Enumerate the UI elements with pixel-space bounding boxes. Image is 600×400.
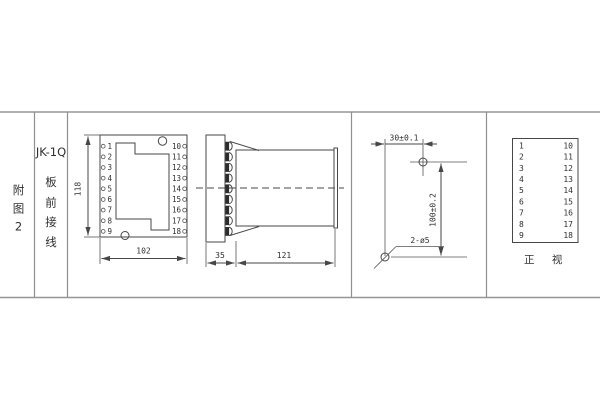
- table-terminal-number: 11: [563, 153, 573, 162]
- terminal-contact-circle: [183, 219, 187, 223]
- table-terminal-number: 18: [563, 231, 573, 240]
- terminal-contact-circle: [183, 230, 187, 234]
- side-view-chamfer-bottom: [230, 227, 259, 236]
- table-terminal-number: 1: [519, 141, 524, 150]
- table-terminal-number: 9: [519, 231, 524, 240]
- front-terminal-number: 4: [108, 174, 113, 183]
- terminal-contact-circle: [101, 166, 105, 170]
- terminal-pin-base: [226, 174, 230, 183]
- side-view: 35 121: [196, 135, 344, 267]
- terminal-contact-circle: [183, 176, 187, 180]
- terminal-pin-base: [226, 206, 230, 215]
- terminal-contact-circle: [101, 230, 105, 234]
- terminal-pin-base: [226, 142, 230, 151]
- figure-label-column: 附 图 2: [13, 183, 25, 234]
- front-terminal-number: 13: [172, 174, 181, 183]
- front-terminal-number: 17: [172, 216, 181, 225]
- wiring-label-char: 前: [45, 196, 57, 210]
- table-terminal-number: 2: [519, 153, 524, 162]
- hole-note-leader: 2-ø5: [374, 236, 444, 269]
- terminal-pin-base: [226, 216, 230, 225]
- table-terminal-number: 16: [563, 209, 573, 218]
- dim-118: 118: [74, 135, 101, 237]
- model-label: JK-1Q: [35, 145, 66, 159]
- dim-102: 102: [100, 238, 187, 264]
- wiring-label-char: 线: [45, 235, 57, 249]
- technical-drawing: 附 图 2 JK-1Q 板 前 接 线 123456789 1011121314…: [0, 0, 600, 400]
- terminal-table-left-numbers: 123456789: [519, 141, 524, 240]
- mounting-hole-bottom: [121, 232, 129, 240]
- terminal-table-right-numbers: 101112131415161718: [563, 141, 573, 240]
- table-terminal-number: 17: [563, 220, 573, 229]
- terminal-contact-circle: [183, 166, 187, 170]
- terminal-pin-base: [226, 163, 230, 172]
- front-terminal-number: 1: [108, 142, 113, 151]
- terminal-table: 123456789 101112131415161718 正 视: [513, 139, 579, 267]
- front-view: 123456789 101112131415161718 118 102: [74, 135, 188, 264]
- terminal-pin-dome: [229, 206, 232, 215]
- dim-text-width: 102: [136, 247, 151, 256]
- dim-text-height: 118: [74, 182, 83, 197]
- drilling-plan: 30±0.1 100±0.2 2-ø5: [371, 134, 467, 269]
- front-left-terminal-numbers: 123456789: [108, 142, 113, 236]
- mounting-hole-top: [158, 137, 166, 145]
- table-terminal-number: 4: [519, 175, 524, 184]
- front-left-terminal-circles: [101, 144, 105, 233]
- view-caption: 正 视: [524, 253, 569, 266]
- figure-label-char: 附: [13, 183, 25, 197]
- terminal-contact-circle: [101, 155, 105, 159]
- front-terminal-number: 15: [172, 195, 181, 204]
- front-terminal-number: 10: [172, 142, 182, 151]
- table-terminal-number: 3: [519, 164, 524, 173]
- terminal-pin-base: [226, 227, 230, 236]
- side-view-terminal-bumps: [226, 142, 233, 236]
- wiring-label-char: 接: [45, 215, 57, 229]
- front-terminal-number: 12: [172, 163, 181, 172]
- terminal-pin-dome: [229, 142, 232, 151]
- side-view-chamfer-top: [230, 142, 259, 151]
- dim-100: 100±0.2: [429, 164, 442, 256]
- table-terminal-number: 15: [563, 197, 573, 206]
- terminal-contact-circle: [101, 208, 105, 212]
- hole-note-text: 2-ø5: [410, 236, 429, 245]
- terminal-contact-circle: [101, 187, 105, 191]
- front-right-terminal-circles: [183, 144, 187, 233]
- wiring-label-char: 板: [45, 175, 57, 189]
- table-terminal-number: 13: [563, 175, 573, 184]
- terminal-pin-dome: [229, 185, 232, 194]
- terminal-pin-dome: [229, 153, 232, 162]
- drawing-sheet: 附 图 2 JK-1Q 板 前 接 线 123456789 1011121314…: [0, 0, 600, 400]
- terminal-pin-dome: [229, 216, 232, 225]
- front-right-terminal-numbers: 101112131415161718: [172, 142, 182, 236]
- terminal-contact-circle: [101, 198, 105, 202]
- front-terminal-number: 3: [108, 163, 113, 172]
- dim-text-hole-spacing-v: 100±0.2: [429, 193, 438, 227]
- terminal-pin-base: [226, 152, 230, 161]
- table-terminal-number: 14: [563, 186, 573, 195]
- table-terminal-number: 12: [563, 164, 573, 173]
- figure-label-char: 2: [15, 220, 22, 234]
- front-terminal-number: 18: [172, 227, 182, 236]
- terminal-contact-circle: [101, 144, 105, 148]
- sheet-frame: [0, 112, 600, 298]
- dim-30: 30±0.1: [371, 134, 437, 145]
- terminal-contact-circle: [101, 176, 105, 180]
- dim-text-hole-spacing-h: 30±0.1: [390, 134, 419, 143]
- front-terminal-number: 16: [172, 206, 182, 215]
- terminal-pin-base: [226, 195, 230, 204]
- front-terminal-number: 11: [172, 152, 181, 161]
- dim-text-body-depth: 121: [277, 251, 292, 260]
- terminal-contact-circle: [183, 198, 187, 202]
- dim-text-plate-depth: 35: [215, 251, 225, 260]
- front-terminal-number: 8: [108, 216, 113, 225]
- figure-label-char: 图: [13, 202, 25, 216]
- front-terminal-number: 14: [172, 184, 182, 193]
- front-terminal-number: 2: [108, 152, 113, 161]
- front-terminal-number: 7: [108, 206, 113, 215]
- terminal-pin-dome: [229, 163, 232, 172]
- terminal-contact-circle: [183, 155, 187, 159]
- front-terminal-number: 6: [108, 195, 113, 204]
- terminal-pin-dome: [229, 195, 232, 204]
- terminal-contact-circle: [183, 208, 187, 212]
- terminal-pin-dome: [229, 174, 232, 183]
- front-terminal-number: 9: [108, 227, 113, 236]
- table-terminal-number: 6: [519, 197, 524, 206]
- front-terminal-number: 5: [108, 184, 113, 193]
- table-terminal-number: 7: [519, 209, 524, 218]
- terminal-contact-circle: [183, 144, 187, 148]
- table-terminal-number: 8: [519, 220, 524, 229]
- table-terminal-number: 5: [519, 186, 524, 195]
- terminal-contact-circle: [183, 187, 187, 191]
- front-view-inner-cutout: [116, 143, 169, 230]
- terminal-contact-circle: [101, 219, 105, 223]
- wiring-label-column: JK-1Q 板 前 接 线: [35, 145, 66, 249]
- table-terminal-number: 10: [563, 141, 573, 150]
- terminal-pin-base: [226, 184, 230, 193]
- terminal-pin-dome: [229, 227, 232, 236]
